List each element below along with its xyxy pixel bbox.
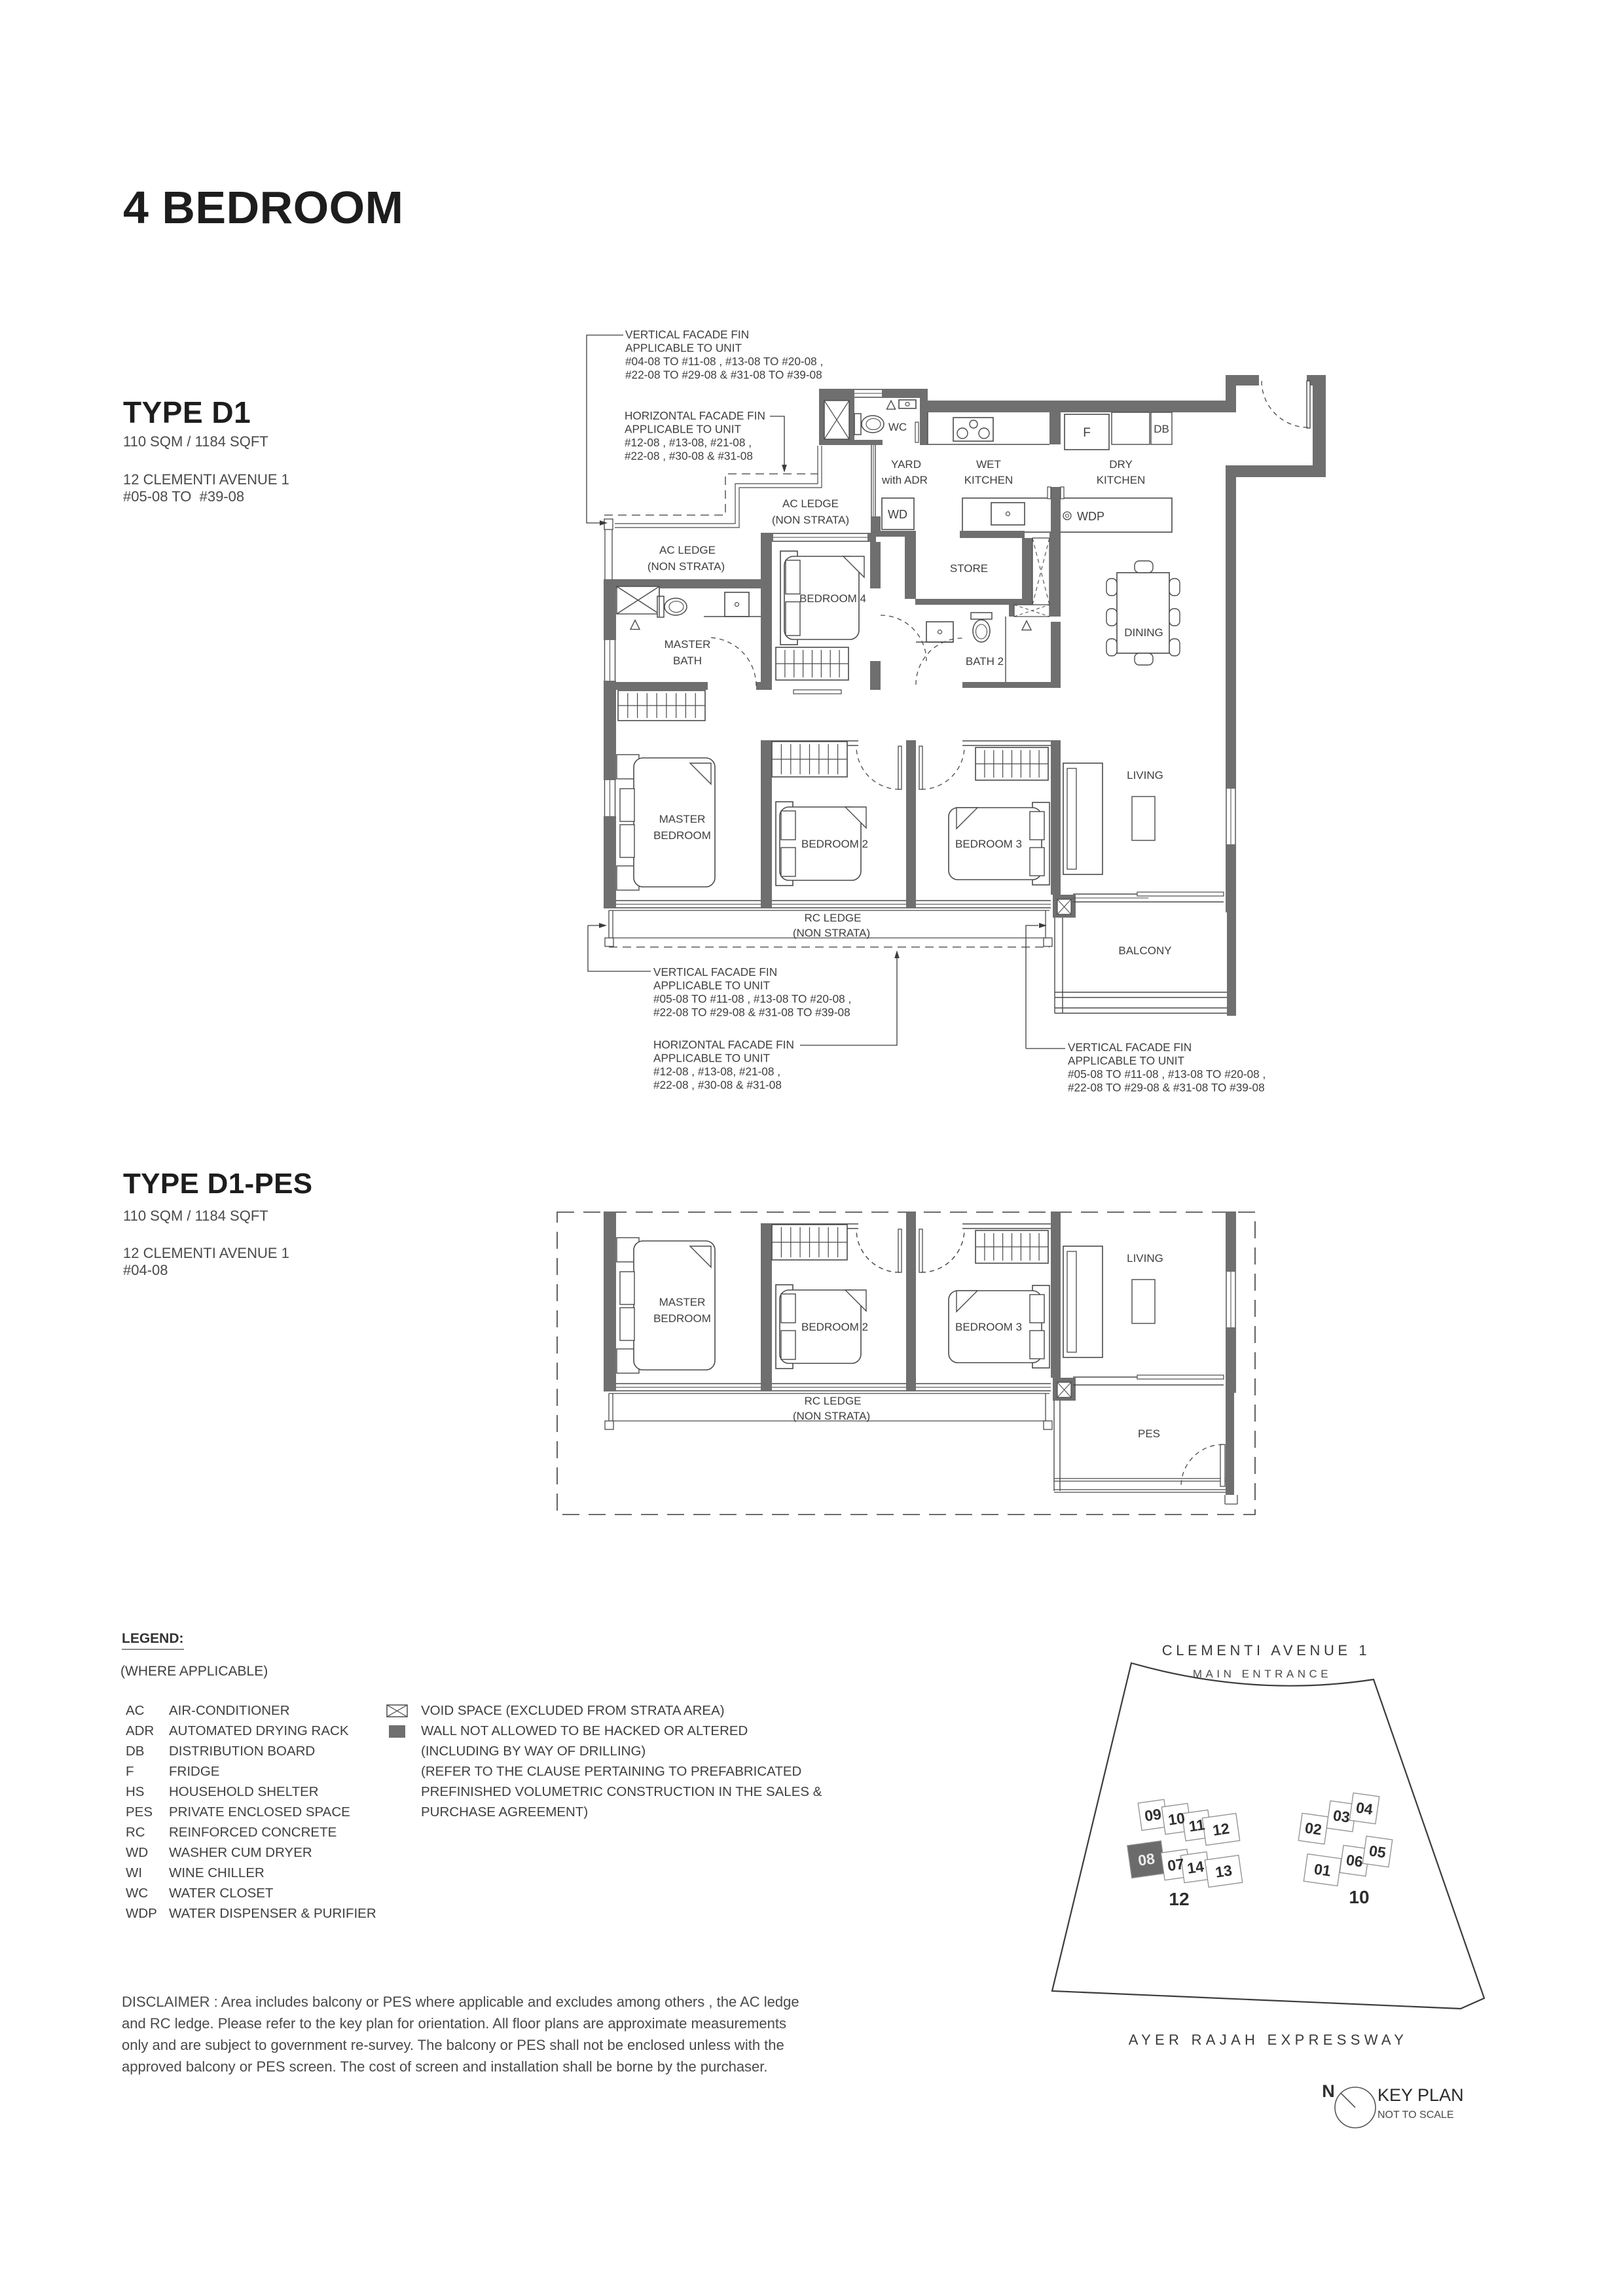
svg-text:KITCHEN: KITCHEN — [964, 474, 1013, 486]
svg-text:WD: WD — [126, 1845, 148, 1860]
svg-text:F: F — [126, 1764, 134, 1779]
svg-text:13: 13 — [1214, 1861, 1233, 1880]
svg-text:N: N — [1322, 2081, 1335, 2101]
svg-text:with ADR: with ADR — [881, 474, 928, 486]
svg-text:WET: WET — [976, 458, 1001, 471]
svg-text:01: 01 — [1313, 1860, 1332, 1879]
svg-text:BATH: BATH — [673, 655, 702, 667]
svg-text:HORIZONTAL FACADE FIN: HORIZONTAL FACADE FIN — [625, 409, 765, 422]
svg-text:PES: PES — [1138, 1427, 1160, 1440]
svg-text:DB: DB — [1154, 423, 1169, 435]
svg-text:RC LEDGE: RC LEDGE — [805, 1395, 862, 1407]
svg-text:AC LEDGE: AC LEDGE — [659, 544, 716, 556]
svg-text:MAIN ENTRANCE: MAIN ENTRANCE — [1193, 1668, 1332, 1680]
svg-text:CLEMENTI AVENUE 1: CLEMENTI AVENUE 1 — [1162, 1642, 1371, 1659]
svg-text:BEDROOM: BEDROOM — [653, 1312, 711, 1325]
svg-text:LIVING: LIVING — [1127, 769, 1163, 781]
svg-text:DB: DB — [126, 1744, 144, 1759]
svg-text:14: 14 — [1186, 1857, 1205, 1876]
svg-text:F: F — [1083, 426, 1091, 440]
svg-text:WATER DISPENSER & PURIFIER: WATER DISPENSER & PURIFIER — [169, 1906, 376, 1921]
svg-text:NOT TO SCALE: NOT TO SCALE — [1377, 2109, 1453, 2121]
svg-text:PURCHASE AGREEMENT): PURCHASE AGREEMENT) — [421, 1804, 588, 1820]
svg-text:WDP: WDP — [126, 1906, 157, 1921]
svg-text:04: 04 — [1355, 1799, 1374, 1818]
svg-text:AYER RAJAH EXPRESSWAY: AYER RAJAH EXPRESSWAY — [1129, 2032, 1408, 2048]
svg-text:BEDROOM 2: BEDROOM 2 — [801, 1321, 868, 1333]
svg-text:#22-08 TO #29-08 & #31-08 TO #: #22-08 TO #29-08 & #31-08 TO #39-08 — [1068, 1081, 1265, 1094]
svg-text:#22-08 , #30-08 & #31-08: #22-08 , #30-08 & #31-08 — [625, 450, 753, 463]
svg-text:AIR-CONDITIONER: AIR-CONDITIONER — [169, 1703, 290, 1718]
svg-text:#05-08 TO #11-08 , #13-08 TO #: #05-08 TO #11-08 , #13-08 TO #20-08 , — [653, 992, 851, 1005]
svg-text:06: 06 — [1345, 1851, 1364, 1870]
svg-text:PREFINISHED VOLUMETRIC CONSTRU: PREFINISHED VOLUMETRIC CONSTRUCTION IN T… — [421, 1784, 822, 1799]
svg-text:AUTOMATED DRYING RACK: AUTOMATED DRYING RACK — [169, 1723, 349, 1738]
svg-text:12: 12 — [1169, 1889, 1189, 1909]
svg-text:PRIVATE ENCLOSED SPACE: PRIVATE ENCLOSED SPACE — [169, 1804, 350, 1820]
svg-text:(NON STRATA): (NON STRATA) — [793, 1410, 870, 1422]
svg-text:FRIDGE: FRIDGE — [169, 1764, 219, 1779]
svg-text:RC: RC — [126, 1825, 145, 1840]
svg-text:and RC ledge. Please refer to: and RC ledge. Please refer to the key pl… — [122, 2015, 786, 2032]
svg-text:HORIZONTAL FACADE FIN: HORIZONTAL FACADE FIN — [653, 1038, 794, 1051]
svg-text:10: 10 — [1349, 1887, 1369, 1907]
svg-text:WINE CHILLER: WINE CHILLER — [169, 1865, 264, 1880]
svg-text:VERTICAL FACADE FIN: VERTICAL FACADE FIN — [625, 328, 749, 341]
svg-text:VERTICAL FACADE FIN: VERTICAL FACADE FIN — [1068, 1041, 1192, 1054]
svg-text:BEDROOM 3: BEDROOM 3 — [955, 838, 1022, 850]
svg-text:(INCLUDING BY WAY OF DRILLING): (INCLUDING BY WAY OF DRILLING) — [421, 1744, 646, 1759]
svg-text:WDP: WDP — [1077, 510, 1104, 523]
svg-text:APPLICABLE TO UNIT: APPLICABLE TO UNIT — [1068, 1054, 1184, 1067]
svg-text:KITCHEN: KITCHEN — [1097, 474, 1146, 486]
svg-text:REINFORCED CONCRETE: REINFORCED CONCRETE — [169, 1825, 337, 1840]
svg-text:BEDROOM 3: BEDROOM 3 — [955, 1321, 1022, 1333]
svg-text:#04-08 TO #11-08 , #13-08 TO #: #04-08 TO #11-08 , #13-08 TO #20-08 , — [625, 355, 823, 368]
svg-text:APPLICABLE TO UNIT: APPLICABLE TO UNIT — [625, 342, 742, 355]
svg-text:BATH 2: BATH 2 — [966, 655, 1004, 668]
svg-text:09: 09 — [1144, 1805, 1163, 1824]
svg-text:DINING: DINING — [1124, 626, 1163, 639]
svg-text:BEDROOM 2: BEDROOM 2 — [801, 838, 868, 850]
svg-text:MASTER: MASTER — [665, 638, 711, 651]
svg-text:12: 12 — [1212, 1820, 1231, 1839]
svg-text:07: 07 — [1167, 1855, 1186, 1874]
svg-text:02: 02 — [1304, 1819, 1323, 1838]
svg-text:ADR: ADR — [126, 1723, 154, 1738]
svg-text:05: 05 — [1368, 1842, 1387, 1861]
svg-text:#22-08 TO #29-08 & #31-08 TO #: #22-08 TO #29-08 & #31-08 TO #39-08 — [625, 368, 822, 382]
svg-text:(NON STRATA): (NON STRATA) — [647, 560, 725, 573]
svg-text:#22-08 TO #29-08 & #31-08 TO #: #22-08 TO #29-08 & #31-08 TO #39-08 — [653, 1006, 850, 1019]
svg-text:AC: AC — [126, 1703, 145, 1718]
svg-text:(REFER TO THE CLAUSE PERTAININ: (REFER TO THE CLAUSE PERTAINING TO PREFA… — [421, 1764, 801, 1779]
svg-text:WC: WC — [126, 1886, 148, 1901]
svg-text:WASHER CUM DRYER: WASHER CUM DRYER — [169, 1845, 312, 1860]
svg-text:10: 10 — [1167, 1809, 1186, 1828]
svg-text:WALL NOT ALLOWED TO BE HACKED: WALL NOT ALLOWED TO BE HACKED OR ALTERED — [421, 1723, 748, 1738]
svg-text:only and are subject to govern: only and are subject to government re-su… — [122, 2037, 784, 2053]
svg-text:APPLICABLE TO UNIT: APPLICABLE TO UNIT — [653, 979, 770, 992]
svg-text:11: 11 — [1188, 1816, 1206, 1835]
svg-text:BALCONY: BALCONY — [1118, 944, 1171, 957]
svg-text:VOID SPACE (EXCLUDED FROM STRA: VOID SPACE (EXCLUDED FROM STRATA AREA) — [421, 1703, 725, 1718]
svg-text:LIVING: LIVING — [1127, 1252, 1163, 1265]
svg-text:DISCLAIMER : Area includes bal: DISCLAIMER : Area includes balcony or PE… — [122, 1994, 799, 2010]
svg-text:approved balcony or PES screen: approved balcony or PES screen. The cost… — [122, 2058, 768, 2075]
svg-text:VERTICAL FACADE FIN: VERTICAL FACADE FIN — [653, 965, 777, 978]
svg-text:#22-08 , #30-08 & #31-08: #22-08 , #30-08 & #31-08 — [653, 1079, 782, 1092]
svg-text:AC LEDGE: AC LEDGE — [782, 497, 839, 510]
svg-text:WD: WD — [888, 508, 907, 521]
svg-text:APPLICABLE TO UNIT: APPLICABLE TO UNIT — [653, 1052, 770, 1065]
svg-text:HOUSEHOLD SHELTER: HOUSEHOLD SHELTER — [169, 1784, 319, 1799]
svg-text:03: 03 — [1332, 1806, 1351, 1825]
svg-text:(NON STRATA): (NON STRATA) — [772, 514, 849, 526]
svg-text:MASTER: MASTER — [659, 813, 706, 825]
svg-text:RC LEDGE: RC LEDGE — [805, 912, 862, 924]
svg-text:MASTER: MASTER — [659, 1296, 706, 1308]
svg-text:DISTRIBUTION BOARD: DISTRIBUTION BOARD — [169, 1744, 315, 1759]
svg-text:BEDROOM 4: BEDROOM 4 — [799, 592, 866, 605]
svg-text:WI: WI — [126, 1865, 142, 1880]
svg-text:HS: HS — [126, 1784, 144, 1799]
svg-text:PES: PES — [126, 1804, 153, 1820]
svg-text:08: 08 — [1137, 1850, 1156, 1869]
svg-text:YARD: YARD — [891, 458, 921, 471]
svg-text:#12-08 , #13-08, #21-08 ,: #12-08 , #13-08, #21-08 , — [653, 1065, 780, 1078]
svg-text:#05-08 TO #11-08 , #13-08 TO #: #05-08 TO #11-08 , #13-08 TO #20-08 , — [1068, 1067, 1266, 1081]
svg-text:APPLICABLE TO UNIT: APPLICABLE TO UNIT — [625, 423, 741, 436]
svg-text:(NON STRATA): (NON STRATA) — [793, 927, 870, 939]
svg-text:WATER CLOSET: WATER CLOSET — [169, 1886, 274, 1901]
svg-text:#12-08 , #13-08, #21-08 ,: #12-08 , #13-08, #21-08 , — [625, 436, 752, 449]
svg-text:DRY: DRY — [1109, 458, 1133, 471]
svg-text:WC: WC — [888, 421, 907, 433]
svg-text:BEDROOM: BEDROOM — [653, 829, 711, 842]
svg-text:STORE: STORE — [950, 562, 988, 575]
svg-text:KEY PLAN: KEY PLAN — [1377, 2085, 1464, 2105]
